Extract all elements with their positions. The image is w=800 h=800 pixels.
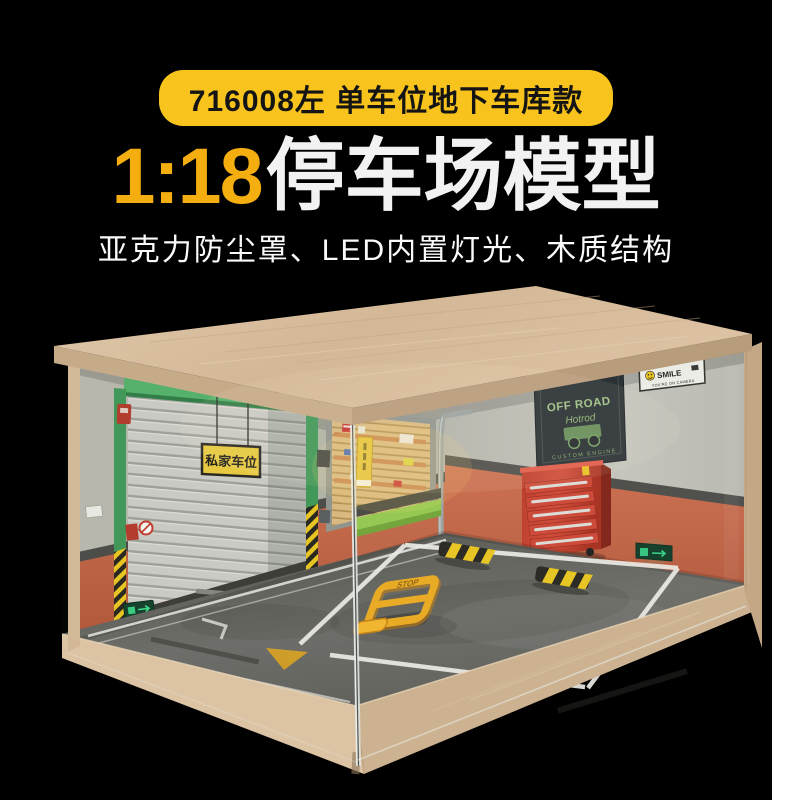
product-banner: 716008左 单车位地下车库款 1:18停车场模型 亚克力防尘罩、LED内置灯…: [0, 0, 800, 800]
diorama-scene: 私家车位: [0, 0, 800, 800]
led-glow-spot: [312, 423, 472, 513]
acrylic-side-sheen: [724, 365, 739, 580]
page-side-margin: [772, 0, 800, 800]
